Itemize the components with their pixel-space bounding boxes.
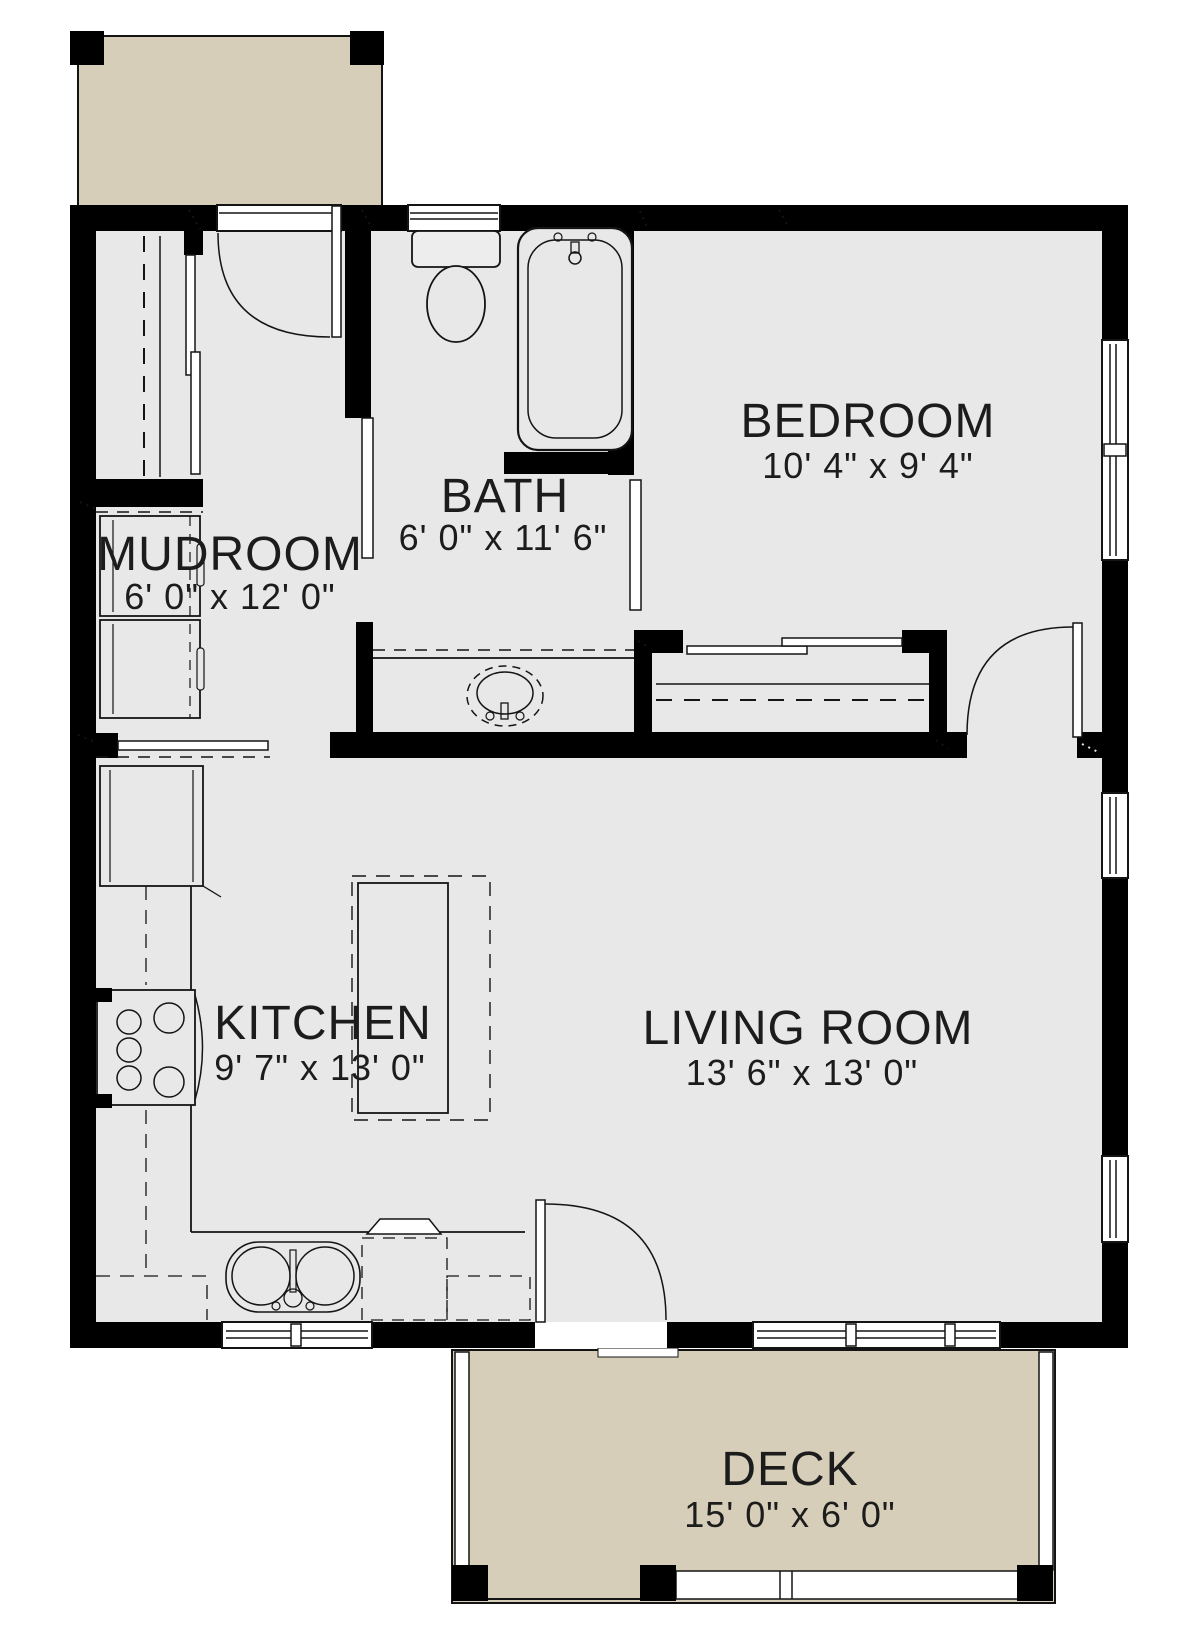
toilet-tank bbox=[412, 231, 500, 267]
kitchen-label: KITCHEN bbox=[214, 997, 432, 1050]
dryer bbox=[100, 620, 204, 718]
entry-threshold bbox=[217, 205, 341, 231]
bedroom-bath-pocket-door bbox=[630, 480, 641, 610]
deck-rail-left bbox=[455, 1352, 469, 1570]
bypass-door-panel bbox=[782, 638, 902, 646]
mudroom-label: MUDROOM bbox=[97, 528, 363, 581]
dishwasher-handle bbox=[367, 1219, 441, 1234]
deck-door-sill bbox=[598, 1348, 678, 1357]
deck-label: DECK bbox=[721, 1443, 858, 1496]
mudroom-dims: 6' 0" x 12' 0" bbox=[124, 576, 335, 617]
range bbox=[96, 988, 203, 1108]
porch-post-left bbox=[70, 31, 104, 65]
deck-door-leaf bbox=[536, 1200, 545, 1322]
refrigerator bbox=[100, 766, 221, 897]
deck-door-opening bbox=[535, 1322, 667, 1348]
porch-post-right bbox=[350, 31, 384, 65]
wall-closet-stub-left bbox=[634, 630, 683, 653]
deck-post-middle bbox=[640, 1565, 676, 1601]
bath-label: BATH bbox=[441, 470, 569, 523]
window-living-bottom bbox=[753, 1322, 1000, 1348]
bathtub bbox=[518, 228, 632, 450]
wall-closet-right bbox=[929, 630, 947, 757]
bedroom-door-opening bbox=[967, 732, 1077, 758]
deck-post-right bbox=[1017, 1565, 1053, 1601]
deck-rail-bottom bbox=[676, 1571, 1019, 1599]
wall-mudroom-bath bbox=[345, 205, 371, 418]
toilet-bowl bbox=[427, 266, 485, 342]
kitchen-dims: 9' 7" x 13' 0" bbox=[214, 1047, 425, 1088]
mudroom-passage-panel bbox=[118, 741, 268, 750]
bath-dims: 6' 0" x 11' 6" bbox=[399, 517, 608, 558]
window-living-right-upper bbox=[1102, 793, 1128, 878]
entry-porch bbox=[70, 31, 384, 206]
floor-plan-page: MUDROOM 6' 0" x 12' 0" BATH 6' 0" x 11' … bbox=[0, 0, 1200, 1640]
bedroom-label: BEDROOM bbox=[740, 395, 995, 448]
kitchen-sink bbox=[226, 1242, 360, 1312]
dryer-handle bbox=[197, 648, 204, 690]
closet-slider-panel bbox=[191, 352, 200, 474]
deck-rail-right bbox=[1039, 1352, 1053, 1570]
wall-left bbox=[70, 205, 96, 1348]
deck-post-left bbox=[452, 1565, 488, 1601]
bath-pocket-door bbox=[362, 418, 373, 558]
porch-floor bbox=[78, 36, 382, 206]
wall-mudroom-kitchen-stub bbox=[96, 733, 118, 758]
deck-dims: 15' 0" x 6' 0" bbox=[684, 1494, 895, 1535]
wall-mudroom-closet-bottom bbox=[96, 479, 203, 507]
window-bedroom-right bbox=[1102, 340, 1128, 560]
bedroom-dims: 10' 4" x 9' 4" bbox=[762, 445, 973, 486]
bypass-door-panel bbox=[687, 646, 807, 654]
wall-vanity-left-stub bbox=[356, 622, 373, 734]
living-room-dims: 13' 6" x 13' 0" bbox=[686, 1052, 918, 1093]
floor-plan-canvas: MUDROOM 6' 0" x 12' 0" BATH 6' 0" x 11' … bbox=[0, 0, 1200, 1640]
wall-closet-stub-top bbox=[184, 231, 203, 255]
window-living-right-lower bbox=[1102, 1156, 1128, 1242]
window-bath-top bbox=[408, 205, 500, 231]
bedroom-door-leaf bbox=[1073, 623, 1082, 737]
window-kitchen-bottom bbox=[222, 1322, 372, 1348]
entry-door-leaf bbox=[332, 206, 341, 337]
living-room-label: LIVING ROOM bbox=[642, 1002, 973, 1055]
